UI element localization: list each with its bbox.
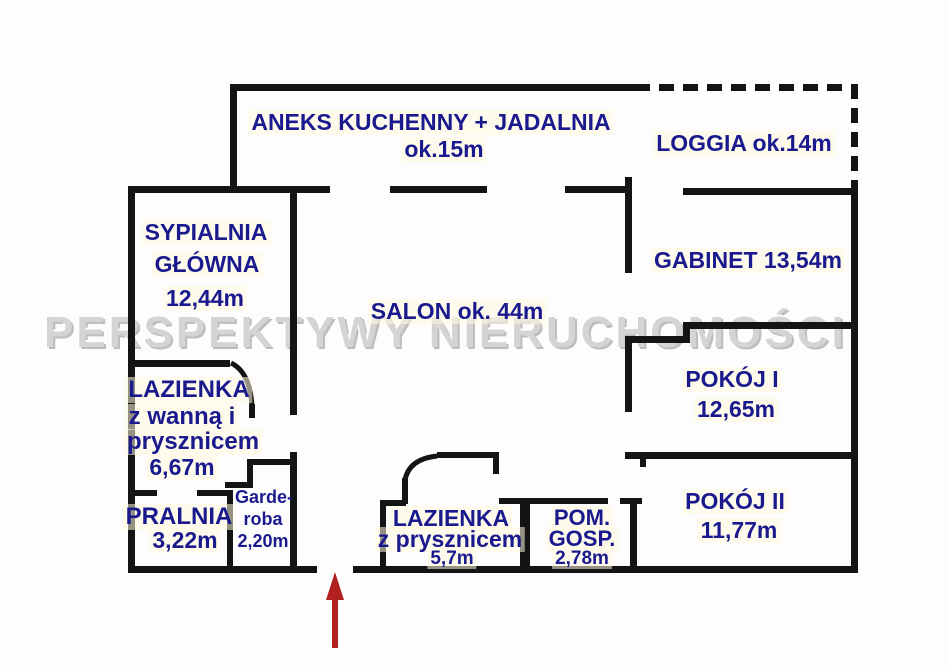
label-garderoba-2: roba [240, 509, 285, 529]
label-pokoj2-area: 11,77m [698, 518, 781, 543]
label-sypialnia-2: GŁÓWNA [152, 252, 263, 277]
label-aneks-name: ANEKS KUCHENNY + JADALNIA [248, 110, 613, 135]
label-lazienka2-area: 5,7m [427, 548, 476, 569]
label-garderoba-area: 2,20m [234, 531, 291, 551]
label-aneks-area: ok.15m [401, 137, 486, 162]
label-pokoj1-name: POKÓJ I [682, 367, 781, 392]
label-lazienka1-1: LAZIENKA [125, 377, 252, 403]
label-garderoba-1: Garde- [232, 487, 296, 507]
label-pomgosp-area: 2,78m [552, 548, 612, 569]
label-sypialnia-1: SYPIALNIA [142, 220, 271, 245]
label-lazienka1-3: prysznicem [124, 429, 262, 455]
label-sypialnia-area: 12,44m [163, 286, 247, 311]
label-lazienka1-area: 6,67m [146, 455, 217, 480]
label-gabinet: GABINET 13,54m [651, 248, 845, 273]
floor-plan: PERSPEKTYWY NIERUCHOMOŚCI [0, 0, 948, 671]
label-lazienka1-2: z wanną i [126, 404, 239, 430]
door-arcs [0, 0, 948, 671]
label-pokoj2-name: POKÓJ II [682, 489, 788, 514]
door-arc-lazienka2 [405, 456, 437, 480]
label-salon: SALON ok. 44m [368, 299, 547, 324]
entrance-arrow-shaft [332, 596, 338, 648]
label-loggia: LOGGIA ok.14m [653, 131, 835, 156]
label-pokoj1-area: 12,65m [694, 397, 778, 422]
label-pralnia-area: 3,22m [149, 528, 220, 553]
